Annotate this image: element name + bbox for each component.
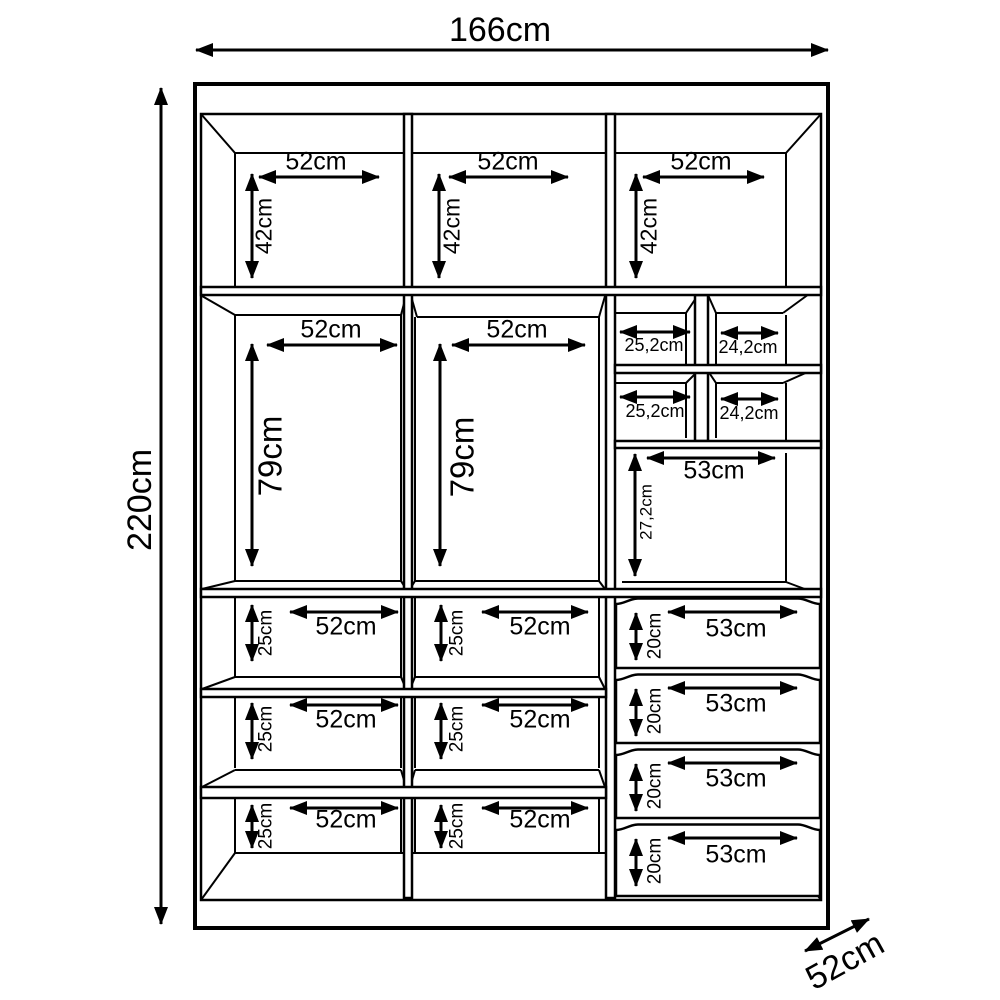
dim-col1-shelf1-width: 52cm: [315, 615, 376, 640]
dim-col2-shelf3-width: 52cm: [509, 808, 570, 833]
dim-col2-shelf3-height: 25cm: [448, 803, 467, 849]
wardrobe-dimension-diagram: 166cm 220cm 52cm 52cm 52cm 52cm 42cm 42c…: [0, 0, 1000, 1000]
dim-drawer4-height: 20cm: [646, 838, 665, 884]
dim-overall-width: 166cm: [449, 13, 551, 47]
dim-col2-shelf1-height: 25cm: [448, 610, 467, 656]
dim-col1-shelf2-width: 52cm: [315, 708, 376, 733]
dim-col1-hanging-height: 79cm: [254, 416, 287, 497]
shelf-top-full: [201, 287, 821, 295]
dim-col1-shelf3-width: 52cm: [315, 808, 376, 833]
shelf-lower-1: [201, 689, 606, 697]
dim-col2-hanging-height: 79cm: [446, 417, 479, 498]
dim-col1-top-width: 52cm: [285, 150, 346, 175]
dim-col1-shelf2-height: 25cm: [257, 706, 276, 752]
dim-col1-shelf1-height: 25cm: [257, 610, 276, 656]
dim-col1-top-height: 42cm: [253, 198, 276, 254]
dim-col2-top-height: 42cm: [441, 198, 464, 254]
dim-drawer3-height: 20cm: [646, 763, 665, 809]
dim-col1-shelf3-height: 25cm: [257, 803, 276, 849]
partition-right: [606, 114, 615, 898]
dim-col2-shelf2-height: 25cm: [448, 706, 467, 752]
dim-drawer3-width: 53cm: [705, 767, 766, 792]
dim-right-mid-height: 27,2cm: [638, 484, 655, 540]
shelf-middle-full: [201, 589, 821, 597]
dim-cubby-r2-right: 24,2cm: [719, 404, 778, 422]
dim-right-mid-width: 53cm: [683, 459, 744, 484]
dim-col2-shelf1-width: 52cm: [509, 615, 570, 640]
dim-drawer2-height: 20cm: [646, 688, 665, 734]
dim-cubby-r1-right: 24,2cm: [718, 338, 777, 356]
dim-col3-top-height: 42cm: [638, 198, 661, 254]
dim-cubby-r1-left: 25,2cm: [624, 336, 683, 354]
dim-drawer1-height: 20cm: [646, 613, 665, 659]
dim-col1-hanging-width: 52cm: [300, 318, 361, 343]
cubby-bottom-shelf: [615, 441, 821, 448]
dim-drawer4-width: 53cm: [705, 843, 766, 868]
dim-col2-top-width: 52cm: [477, 150, 538, 175]
dim-col2-shelf2-width: 52cm: [509, 708, 570, 733]
dim-drawer1-width: 53cm: [705, 617, 766, 642]
dim-col2-hanging-width: 52cm: [486, 318, 547, 343]
shelf-lower-2: [201, 787, 606, 798]
partition-left: [404, 114, 412, 898]
dim-cubby-r2-left: 25,2cm: [625, 402, 684, 420]
dim-drawer2-width: 53cm: [705, 692, 766, 717]
dim-overall-height: 220cm: [123, 449, 157, 551]
cubby-mid-shelf: [615, 365, 821, 373]
dim-col3-top-width: 52cm: [670, 150, 731, 175]
